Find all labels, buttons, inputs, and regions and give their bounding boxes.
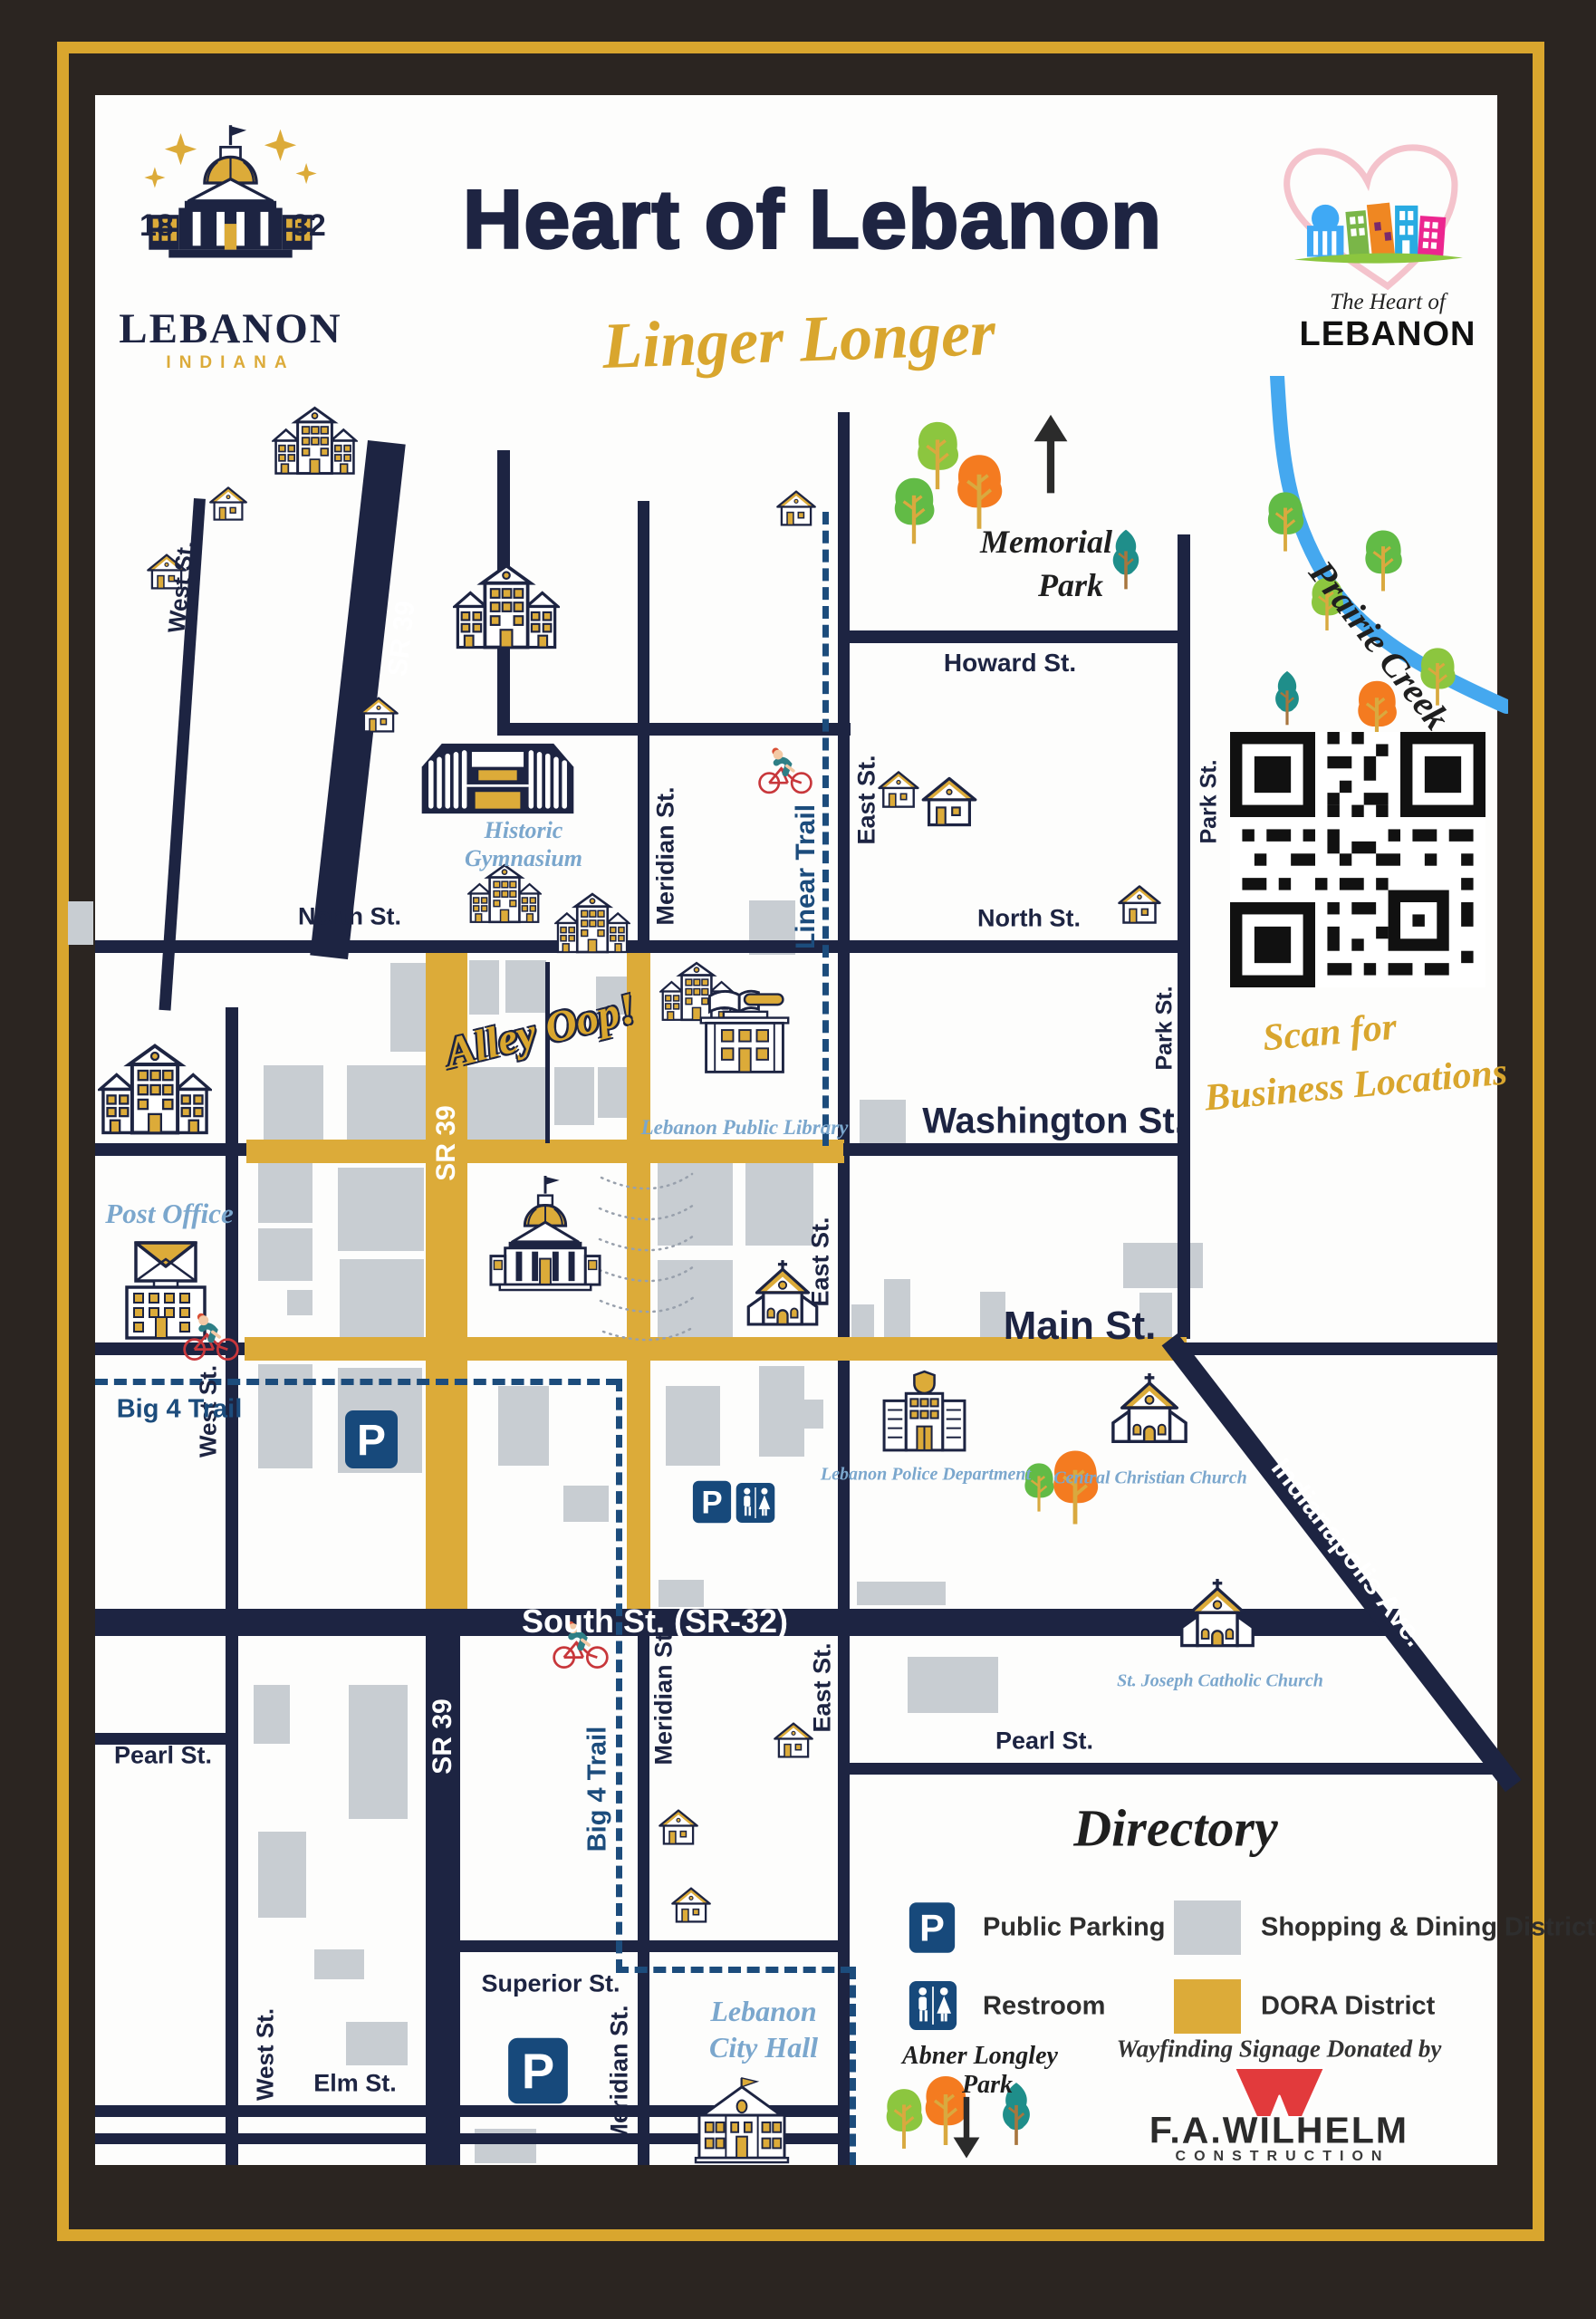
courthouse-icon [487,1174,603,1292]
church-icon [1105,1372,1194,1454]
tree-icon [1359,527,1408,594]
building-block [666,1386,720,1466]
street-superior [426,1940,847,1952]
tree-icon [1262,489,1309,554]
building-block [347,1065,435,1142]
street-label-meridian: Meridian St. [650,1626,678,1765]
big4-trail-label: Big 4 Trail [583,1727,613,1852]
building-block [338,1168,424,1251]
house-icon [1117,884,1162,925]
linear-trail-label: Linear Trail [791,804,822,949]
street-label-pearl: Pearl St. [114,1742,212,1770]
street-gym-block-top [497,723,851,736]
street-label-south: South St. (SR-32) [522,1602,788,1641]
house-icon [208,486,248,522]
house-icon [775,489,817,527]
street-label-north: North St. [977,905,1081,933]
library-label: Lebanon Public Library [641,1116,849,1140]
parking-sign-icon [507,2036,569,2105]
police-label: Lebanon Police Department [821,1465,1031,1486]
street-label-east: East St. [807,1217,835,1306]
sponsor-sub: CONSTRUCTION [1176,2149,1390,2165]
sponsor-name: F.A.WILHELM [1149,2110,1409,2152]
logo-state-name: INDIANA [166,353,294,373]
street-label-north: North St. [298,903,401,931]
street-meridian-south [638,1621,649,2165]
logo-year-right: 32 [292,208,326,244]
street-label-east: East St. [809,1642,837,1732]
post-office-label: Post Office [105,1198,233,1230]
street-main-east [1183,1342,1497,1355]
police-station-icon [877,1370,972,1456]
building-block [467,1067,547,1150]
building-block [264,1065,323,1142]
street-label-superior: Superior St. [481,1970,620,1998]
street-park [1178,534,1190,1339]
street-west [226,1007,238,2165]
building-block [258,1163,312,1223]
city-hall-label-line2: City Hall [709,2031,818,2064]
gym-label-line2: Gymnasium [465,845,582,871]
building-block [884,1279,910,1341]
legend-shopping-swatch [1174,1900,1241,1955]
building-block [314,1949,364,1979]
building-block [802,1400,823,1429]
courthouse-logo-icon [120,123,341,273]
street-north [95,940,1187,953]
building-block [340,1259,424,1345]
street-label-park: Park St. [1197,759,1223,843]
directory-title: Directory [1073,1798,1278,1859]
building-block [68,901,93,945]
restroom-sign-icon [736,1482,775,1524]
restroom-legend-icon [909,1973,957,2038]
cyclist-icon [756,745,814,795]
linear-trail-path [822,512,829,1146]
st-joseph-label: St. Joseph Catholic Church [1117,1671,1323,1692]
legend-parking-label: Public Parking [983,1913,1165,1943]
house-icon [877,770,920,809]
wayfinding-sign-poster: 18 32 LEBANON INDIANA Heart of Lebanon L… [0,0,1596,2319]
building-block [759,1366,804,1457]
big4-trail-label: Big 4 Trail [117,1395,243,1425]
heart-logo-line1: The Heart of [1330,290,1446,315]
library-icon [696,980,793,1083]
parking-sign-icon [692,1480,732,1524]
big4-trail-path-v1 [616,1379,622,1972]
building-block [563,1486,609,1522]
building-block [346,2022,408,2065]
building-block [258,1228,312,1281]
building-block [1123,1243,1203,1288]
house-icon [658,1808,699,1846]
building-block [857,1582,946,1605]
sponsor-intro: Wayfinding Signage Donated by [1117,2035,1442,2064]
street-label-west: West St. [252,2008,280,2101]
tree-icon [949,451,1009,533]
building-block [908,1657,998,1713]
building-block [287,1290,312,1315]
city-hall-icon [690,2076,793,2165]
heart-logo-icon [1268,138,1507,293]
tree-icon [888,475,940,547]
big4-trail-path-west [95,1379,619,1385]
street-label-meridian: Meridian St. [606,2005,634,2143]
building-block [349,1685,408,1819]
big4-trail-path-v2 [850,1967,856,2165]
building-block [254,1685,290,1744]
building-block [554,1067,594,1125]
street-pearl-east [843,1763,1495,1775]
pine-tree-icon [1107,527,1145,592]
legend-dora-swatch [1174,1979,1241,2034]
abner-park-arrow-icon [949,2094,984,2160]
building-block [498,1386,549,1466]
legend-shopping-label: Shopping & Dining District [1261,1913,1595,1943]
logo-city-name: LEBANON [119,304,341,353]
street-label-east: East St. [853,755,881,844]
apartment-icon [453,562,560,651]
building-block [745,1162,813,1246]
cyclist-icon [181,1310,241,1362]
tagline: Linger Longer [601,295,997,384]
street-washington-west [95,1143,254,1156]
logo-year-left: 18 [139,208,174,244]
central-church-label: Central Christian Church [1053,1468,1246,1489]
street-label-howard: Howard St. [944,649,1076,678]
apartment-icon [272,405,358,476]
heart-of-lebanon-logo: The Heart of LEBANON [1261,138,1514,355]
street-label-sr39: SR 39 [431,1105,462,1180]
street-howard [838,630,1190,643]
street-label-washington: Washington St. [922,1102,1185,1142]
memorial-park-label-line1: Memorial [980,523,1112,561]
city-hall-label-line1: Lebanon [710,1995,816,2027]
legend-dora-label: DORA District [1261,1992,1435,2022]
memorial-park-label-line2: Park [1038,566,1103,604]
city-logo: 18 32 LEBANON INDIANA [101,107,360,374]
street-label-meridian: Meridian St. [652,786,680,925]
gym-label: Historic Gymnasium [465,816,582,872]
courthouse-signal-arcs [596,1161,697,1353]
house-icon [670,1886,712,1924]
abner-park-label-line1: Abner Longley [902,2042,1058,2071]
street-east [838,412,850,2165]
street-label-sr39: SR 39 [428,1698,458,1774]
city-hall-label: Lebanon City Hall [709,1993,818,2065]
historic-gymnasium-icon [418,738,577,819]
street-label-park: Park St. [1152,986,1178,1070]
parking-legend-icon [909,1896,956,1959]
street-washington-east [843,1143,1190,1156]
building-block [860,1100,906,1145]
big4-trail-path-h2 [616,1967,853,1973]
abner-park-label-line2: Park [962,2071,1013,2100]
apartment-icon [98,1042,212,1137]
building-block [258,1832,306,1918]
apartment-icon [554,891,630,955]
house-icon [920,775,978,828]
house-icon [358,696,399,734]
legend-restroom-label: Restroom [983,1992,1105,2022]
street-label-main: Main St. [1004,1304,1157,1349]
parking-sign-icon [344,1410,399,1469]
heart-logo-line2: LEBANON [1300,315,1476,354]
building-block [469,960,499,1015]
gym-label-line1: Historic [485,817,563,843]
qr-code [1230,732,1485,987]
pine-tree-icon [1270,669,1304,728]
church-icon [1174,1578,1261,1658]
street-label-pearl: Pearl St. [995,1727,1093,1756]
page-title: Heart of Lebanon [463,173,1162,268]
north-arrow-icon [1030,409,1072,500]
street-label-elm: Elm St. [313,2070,397,2098]
